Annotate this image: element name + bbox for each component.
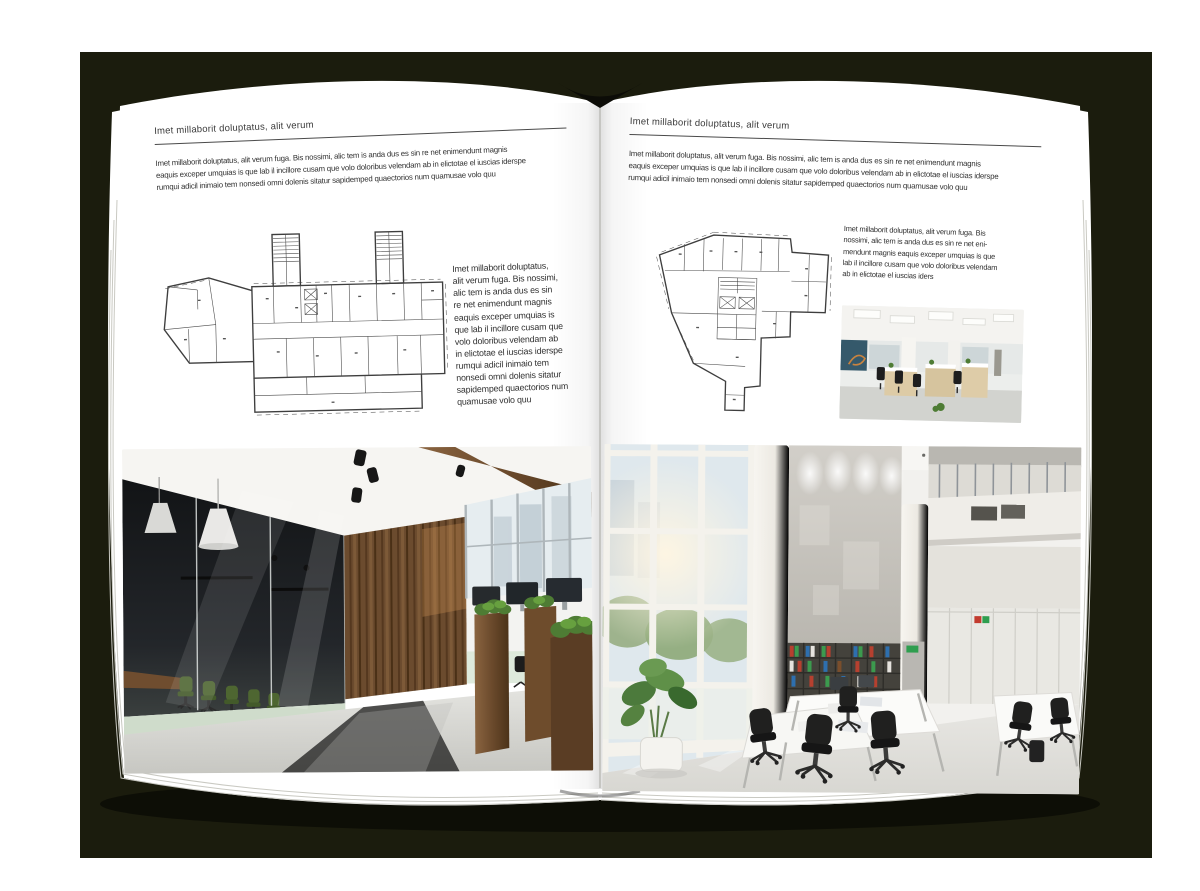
right-photo-open-office-small <box>839 305 1024 423</box>
right-page-content: Imet millaborit doluptatus, alit verum I… <box>628 116 1042 196</box>
far-door <box>994 350 1002 376</box>
floorplan-room-labels <box>183 290 437 406</box>
exit-sign <box>906 646 918 653</box>
magazine-spread-mockup: Imet millaborit doluptatus, alit verum I… <box>0 0 1200 891</box>
wood-wall-sunlight <box>422 523 467 617</box>
right-side-text: Imet millaborit doluptatus, alit verum f… <box>842 223 998 284</box>
feature-wall <box>840 340 867 371</box>
left-side-text: Imet millaborit doluptatus, alit verum f… <box>452 259 569 408</box>
first-aid-sign <box>974 616 981 623</box>
cabinet-wall <box>927 608 1080 705</box>
floorplan-room-labels <box>675 250 808 402</box>
floorplan-window-ticks <box>165 274 449 417</box>
right-floorplan <box>642 217 839 420</box>
floorplan-partitions <box>662 236 827 397</box>
floorplan-outer-walls <box>656 234 829 413</box>
waste-bin <box>1029 740 1044 762</box>
left-photo-loft-office <box>122 446 593 774</box>
mezzanine <box>928 446 1082 609</box>
right-photo-atrium-office <box>602 444 1082 794</box>
left-floorplan <box>157 224 454 419</box>
monitor <box>858 675 874 687</box>
first-aid-sign <box>982 616 989 623</box>
